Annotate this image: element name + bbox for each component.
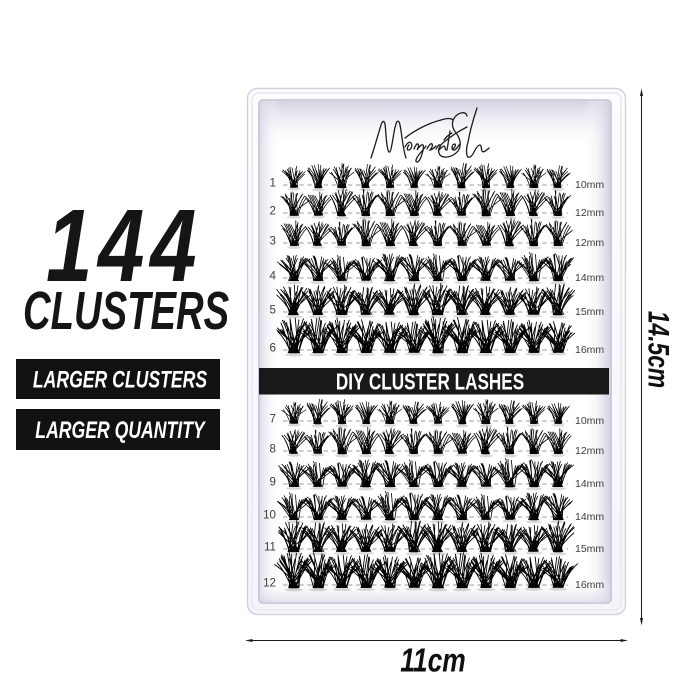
svg-text:6: 6 bbox=[270, 341, 276, 354]
svg-text:LARGER CLUSTERS: LARGER CLUSTERS bbox=[33, 366, 207, 394]
svg-text:11: 11 bbox=[264, 540, 276, 553]
svg-text:12mm: 12mm bbox=[575, 445, 604, 457]
svg-text:10mm: 10mm bbox=[575, 415, 604, 427]
svg-text:9: 9 bbox=[270, 475, 276, 488]
svg-text:12: 12 bbox=[263, 576, 276, 589]
svg-text:4: 4 bbox=[270, 269, 277, 282]
svg-text:14mm: 14mm bbox=[575, 511, 604, 523]
svg-text:5: 5 bbox=[270, 303, 276, 316]
svg-text:14mm: 14mm bbox=[575, 272, 604, 284]
svg-text:15mm: 15mm bbox=[575, 543, 604, 555]
svg-text:15mm: 15mm bbox=[575, 306, 604, 318]
svg-text:12mm: 12mm bbox=[575, 237, 604, 249]
svg-text:16mm: 16mm bbox=[575, 344, 604, 356]
svg-text:14.5cm: 14.5cm bbox=[642, 311, 676, 388]
svg-text:14mm: 14mm bbox=[575, 478, 604, 490]
svg-text:16mm: 16mm bbox=[575, 579, 604, 591]
svg-text:10mm: 10mm bbox=[575, 179, 604, 191]
svg-text:CLUSTERS: CLUSTERS bbox=[23, 281, 229, 341]
svg-text:1: 1 bbox=[270, 176, 276, 189]
svg-text:DIY CLUSTER LASHES: DIY CLUSTER LASHES bbox=[336, 369, 524, 395]
svg-text:2: 2 bbox=[270, 204, 276, 217]
svg-text:8: 8 bbox=[270, 442, 276, 455]
svg-text:12mm: 12mm bbox=[575, 207, 604, 219]
svg-text:11cm: 11cm bbox=[400, 643, 466, 679]
svg-text:LARGER QUANTITY: LARGER QUANTITY bbox=[35, 416, 206, 444]
svg-text:7: 7 bbox=[270, 412, 276, 425]
svg-text:10: 10 bbox=[263, 508, 276, 521]
svg-text:3: 3 bbox=[270, 234, 276, 247]
